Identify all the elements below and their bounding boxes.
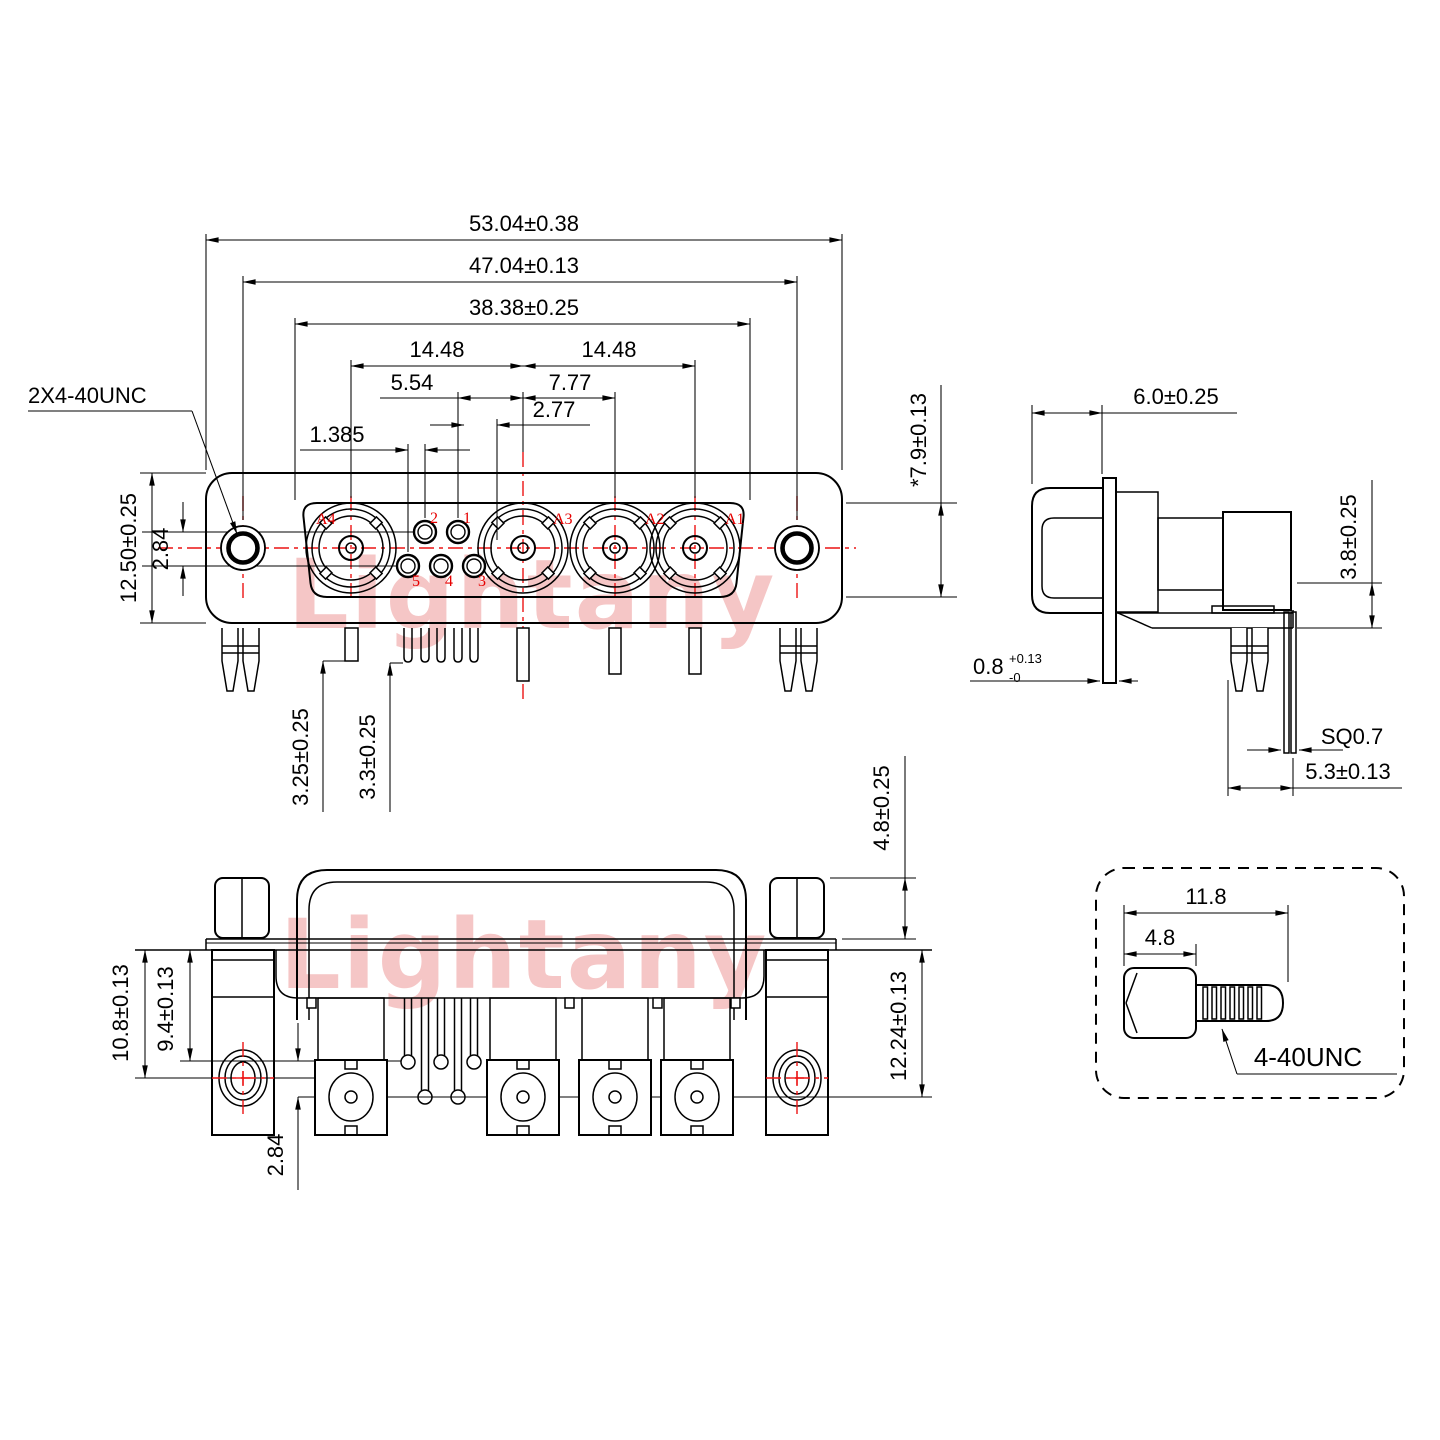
front-mounting-hole-right bbox=[775, 526, 819, 570]
label-a3: A3 bbox=[553, 511, 573, 528]
dim-dshell-width: 38.38±0.25 bbox=[469, 295, 579, 320]
label-p3: 3 bbox=[478, 573, 486, 590]
rear-block-a1 bbox=[661, 998, 733, 1135]
side-rear-block bbox=[1223, 512, 1291, 610]
label-p4: 4 bbox=[445, 573, 453, 590]
dim-coax-pitch: 7.77 bbox=[549, 370, 592, 395]
screw-detail: 11.8 4.8 4-40UNC bbox=[1096, 868, 1404, 1098]
rear-jackscrew-right bbox=[770, 878, 824, 938]
dim-plate-to-contacts: 12.24±0.13 bbox=[886, 971, 911, 1081]
side-contact-barrel bbox=[1158, 518, 1223, 590]
dim-flange-thickness: 0.8 bbox=[973, 654, 1004, 679]
rear-block-a4 bbox=[315, 998, 387, 1135]
dim-plate-to-pins: 9.4±0.13 bbox=[153, 966, 178, 1051]
dim-pitch-left: 14.48 bbox=[409, 337, 464, 362]
dim-screw-length: 11.8 bbox=[1185, 884, 1226, 909]
side-leg-front bbox=[1284, 612, 1289, 753]
dim-pin-offset: 5.3±0.13 bbox=[1305, 759, 1390, 784]
label-a1: A1 bbox=[725, 511, 745, 528]
label-p1: 1 bbox=[463, 510, 471, 527]
side-molded-body bbox=[1116, 492, 1158, 612]
label-p5: 5 bbox=[412, 573, 420, 590]
dim-rear-row-offset: 2.84 bbox=[263, 1134, 288, 1177]
dim-plate-to-hole: 10.8±0.13 bbox=[108, 964, 133, 1062]
connector-drawing: Lightany Lightany bbox=[0, 0, 1440, 1440]
dim-leg-b: 3.3±0.25 bbox=[355, 714, 380, 799]
side-leg-back bbox=[1291, 612, 1296, 753]
front-view: A4 2 1 A3 A2 A1 5 4 3 bbox=[28, 211, 957, 812]
side-insert bbox=[1042, 518, 1103, 598]
side-bracket bbox=[1116, 610, 1293, 628]
dim-overall-width: 53.04±0.38 bbox=[469, 211, 579, 236]
rear-block-a2 bbox=[579, 998, 651, 1135]
label-a2: A2 bbox=[645, 511, 665, 528]
dim-pin-square: SQ0.7 bbox=[1321, 724, 1383, 749]
rear-block-a3 bbox=[487, 998, 559, 1135]
screw-body bbox=[1124, 968, 1283, 1038]
label-p2: 2 bbox=[430, 510, 438, 527]
screw-thread-label: 4-40UNC bbox=[1254, 1042, 1362, 1072]
screw-thread-callout: 4-40UNC bbox=[1222, 1029, 1397, 1074]
dim-flange-tol-minus: -0 bbox=[1009, 670, 1021, 685]
dim-row-stagger: 1.385 bbox=[309, 422, 364, 447]
dim-screw-head: 4.8 bbox=[1145, 925, 1176, 950]
dim-standoff: 3.8±0.25 bbox=[1336, 494, 1361, 579]
dim-flange-tol-plus: +0.13 bbox=[1009, 651, 1042, 666]
side-view: 6.0±0.25 3.8±0.25 0.8 +0.13 -0 SQ0.7 5.3… bbox=[970, 384, 1402, 796]
front-mounting-hole-left bbox=[221, 526, 265, 570]
dim-body-height: 12.50±0.25 bbox=[116, 493, 141, 603]
rear-jackscrew-left bbox=[215, 878, 269, 938]
dim-hole-span: 47.04±0.13 bbox=[469, 253, 579, 278]
dim-screw-height: 4.8±0.25 bbox=[869, 765, 894, 850]
label-a4: A4 bbox=[316, 511, 336, 528]
rear-signal-pins bbox=[401, 998, 481, 1104]
watermark-text-bottom: Lightany bbox=[280, 899, 769, 1011]
side-flange bbox=[1103, 478, 1116, 683]
dim-pin-pitch: 2.77 bbox=[533, 397, 576, 422]
dim-pin-to-center: 5.54 bbox=[391, 370, 434, 395]
drawing-canvas: Lightany Lightany bbox=[0, 0, 1440, 1440]
dim-leg-a: 3.25±0.25 bbox=[288, 708, 313, 806]
thread-label: 2X4-40UNC bbox=[28, 383, 147, 408]
dim-row-offset: 2.84 bbox=[148, 528, 173, 571]
dim-front-depth: 6.0±0.25 bbox=[1133, 384, 1218, 409]
dim-pitch-right: 14.48 bbox=[581, 337, 636, 362]
side-board-lock bbox=[1231, 628, 1268, 691]
dim-dshell-height: *7.9±0.13 bbox=[906, 393, 931, 487]
